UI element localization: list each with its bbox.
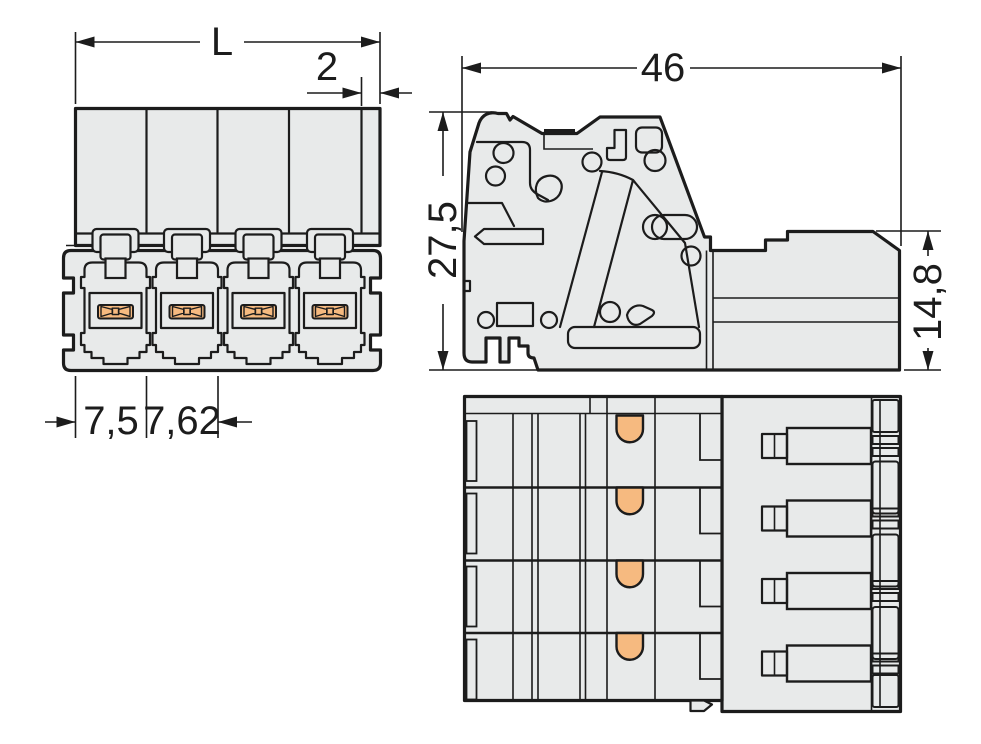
- dim-label-7-5: 7,5: [83, 399, 139, 443]
- dim-label-14-8: 14,8: [906, 263, 950, 341]
- technical-drawing-canvas: L 2 7,5 7,62: [0, 0, 981, 744]
- top-view: [465, 397, 901, 712]
- top-contact-3: [617, 561, 644, 588]
- dim-label-L: L: [211, 20, 233, 64]
- dim-label-46: 46: [641, 46, 686, 90]
- top-contact-2: [617, 488, 644, 515]
- connector-dimension-drawing: L 2 7,5 7,62: [0, 0, 981, 744]
- dim-label-27-5: 27,5: [421, 201, 465, 279]
- front-view: L 2 7,5 7,62: [45, 20, 412, 443]
- dimension-end-width: 2: [307, 45, 412, 106]
- dimension-pitch: 7,5 7,62: [45, 376, 252, 443]
- dim-label-2: 2: [316, 45, 338, 89]
- dim-label-7-62: 7,62: [143, 399, 221, 443]
- front-housing: [76, 109, 381, 246]
- side-view: 46 27,5 14,8: [421, 46, 950, 370]
- top-contact-4: [617, 633, 644, 660]
- top-body: [465, 397, 723, 701]
- top-contact-1: [617, 416, 644, 443]
- top-body-tab: [691, 701, 713, 712]
